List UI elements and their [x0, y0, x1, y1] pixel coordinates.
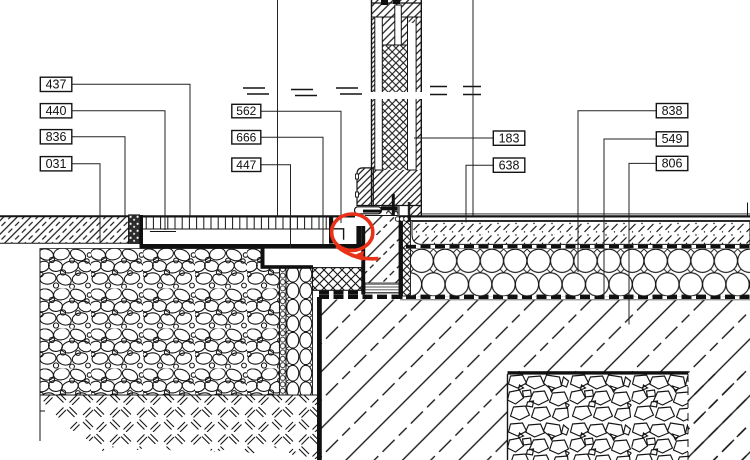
svg-text:806: 806	[662, 157, 683, 171]
svg-text:440: 440	[46, 104, 67, 118]
svg-text:549: 549	[662, 132, 683, 146]
svg-text:447: 447	[236, 158, 256, 172]
svg-text:666: 666	[236, 130, 256, 144]
svg-text:836: 836	[46, 130, 67, 144]
svg-text:031: 031	[46, 157, 67, 171]
svg-text:638: 638	[499, 158, 520, 172]
svg-text:437: 437	[46, 78, 67, 92]
svg-text:838: 838	[662, 104, 683, 118]
svg-text:562: 562	[236, 104, 256, 118]
svg-text:183: 183	[499, 131, 520, 145]
